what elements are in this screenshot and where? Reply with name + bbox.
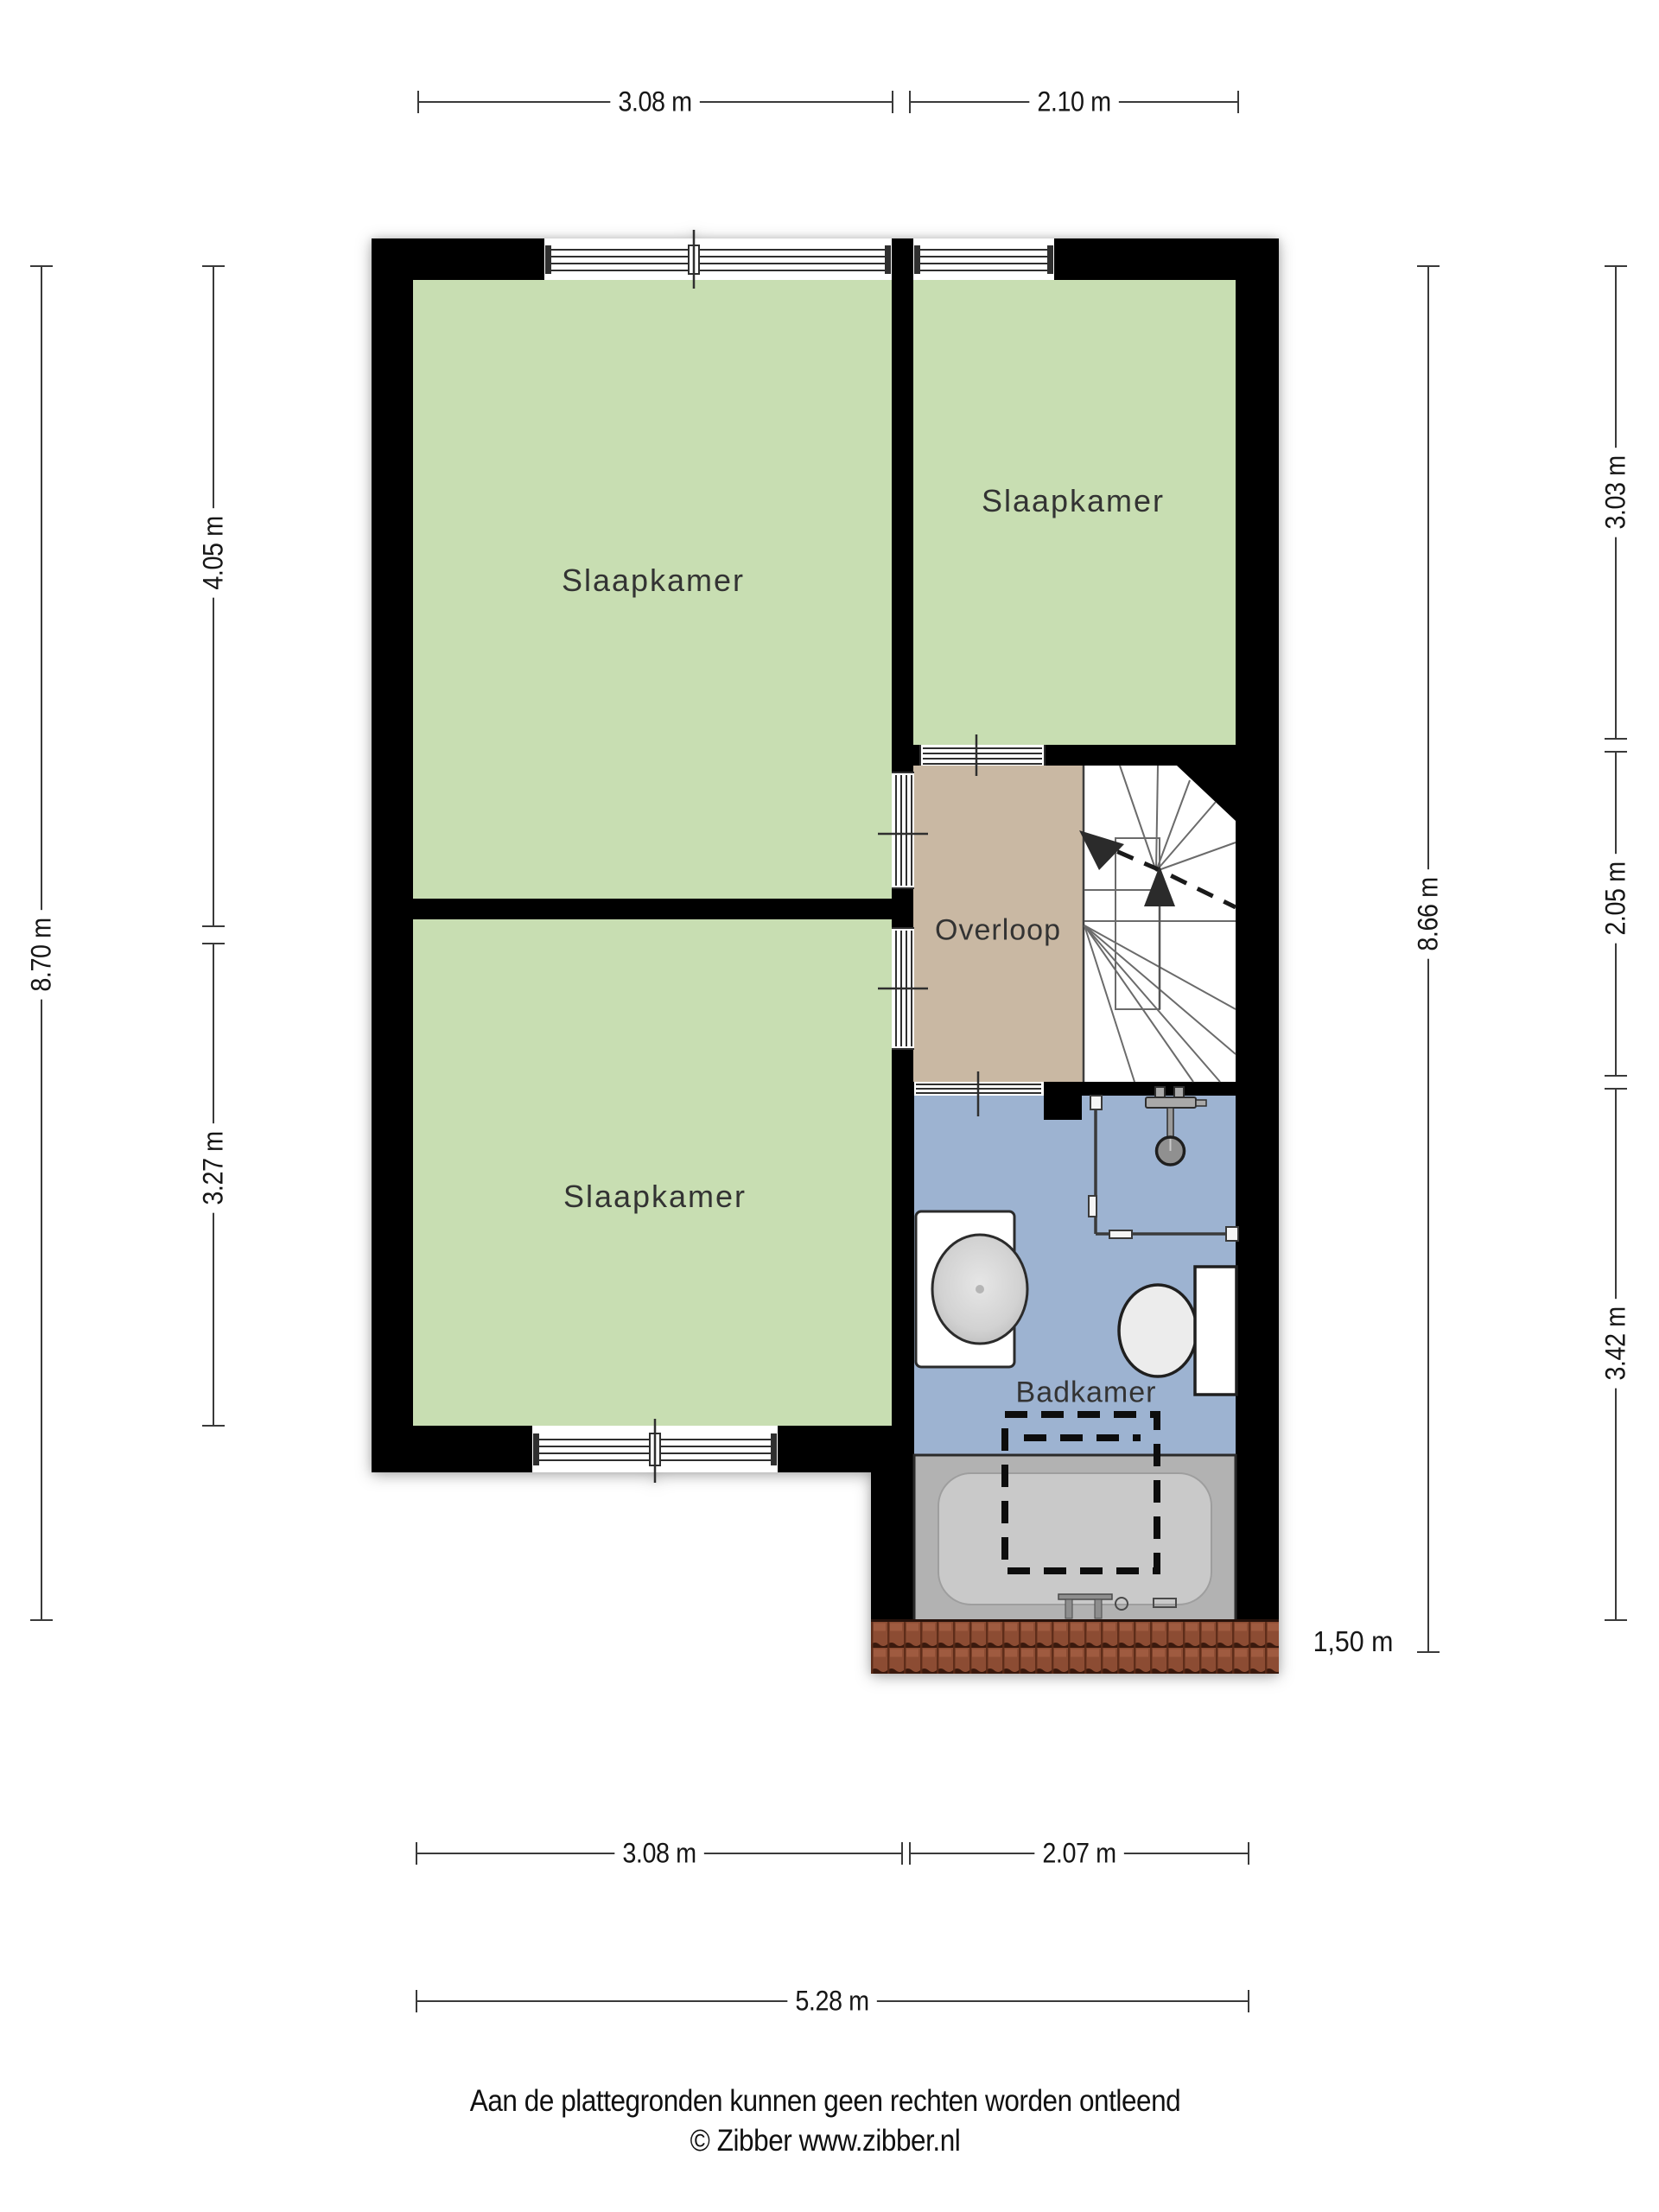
dim-bottom-2: 2.07 m [1034,1838,1123,1868]
dim-bottom-1: 3.08 m [614,1838,703,1868]
footer-disclaimer: Aan de plattegronden kunnen geen rechten… [470,2084,1180,2119]
dim-right-seg-3: 3.42 m [1600,1299,1630,1388]
dim-left-seg-1: 4.05 m [198,508,228,597]
dim-right-overall: 8.66 m [1413,869,1443,958]
room-label-slaapkamer-large: Slaapkamer [562,563,745,598]
headroom-height-label: 1,50 m [1313,1625,1394,1658]
room-label-slaapkamer-bottom-left: Slaapkamer [563,1179,747,1214]
dim-top-2: 2.10 m [1029,86,1118,117]
room-label-slaapkamer-top-right: Slaapkamer [982,484,1165,518]
room-label-badkamer: Badkamer [1016,1376,1157,1408]
dim-left-overall: 8.70 m [26,910,56,999]
dim-right-seg-1: 3.03 m [1600,448,1630,537]
dim-left-seg-2: 3.27 m [198,1123,228,1212]
dim-bottom-overall: 5.28 m [787,1986,876,2016]
dim-right-seg-2: 2.05 m [1600,854,1630,943]
dimension-lines [0,0,1659,2212]
room-label-overloop: Overloop [935,914,1061,946]
footer-copyright: © Zibber www.zibber.nl [690,2124,961,2158]
floor-plan-page: 3.08 m 2.10 m 3.08 m 2.07 m 5.28 m 8.70 … [0,0,1659,2212]
dim-top-1: 3.08 m [610,86,699,117]
